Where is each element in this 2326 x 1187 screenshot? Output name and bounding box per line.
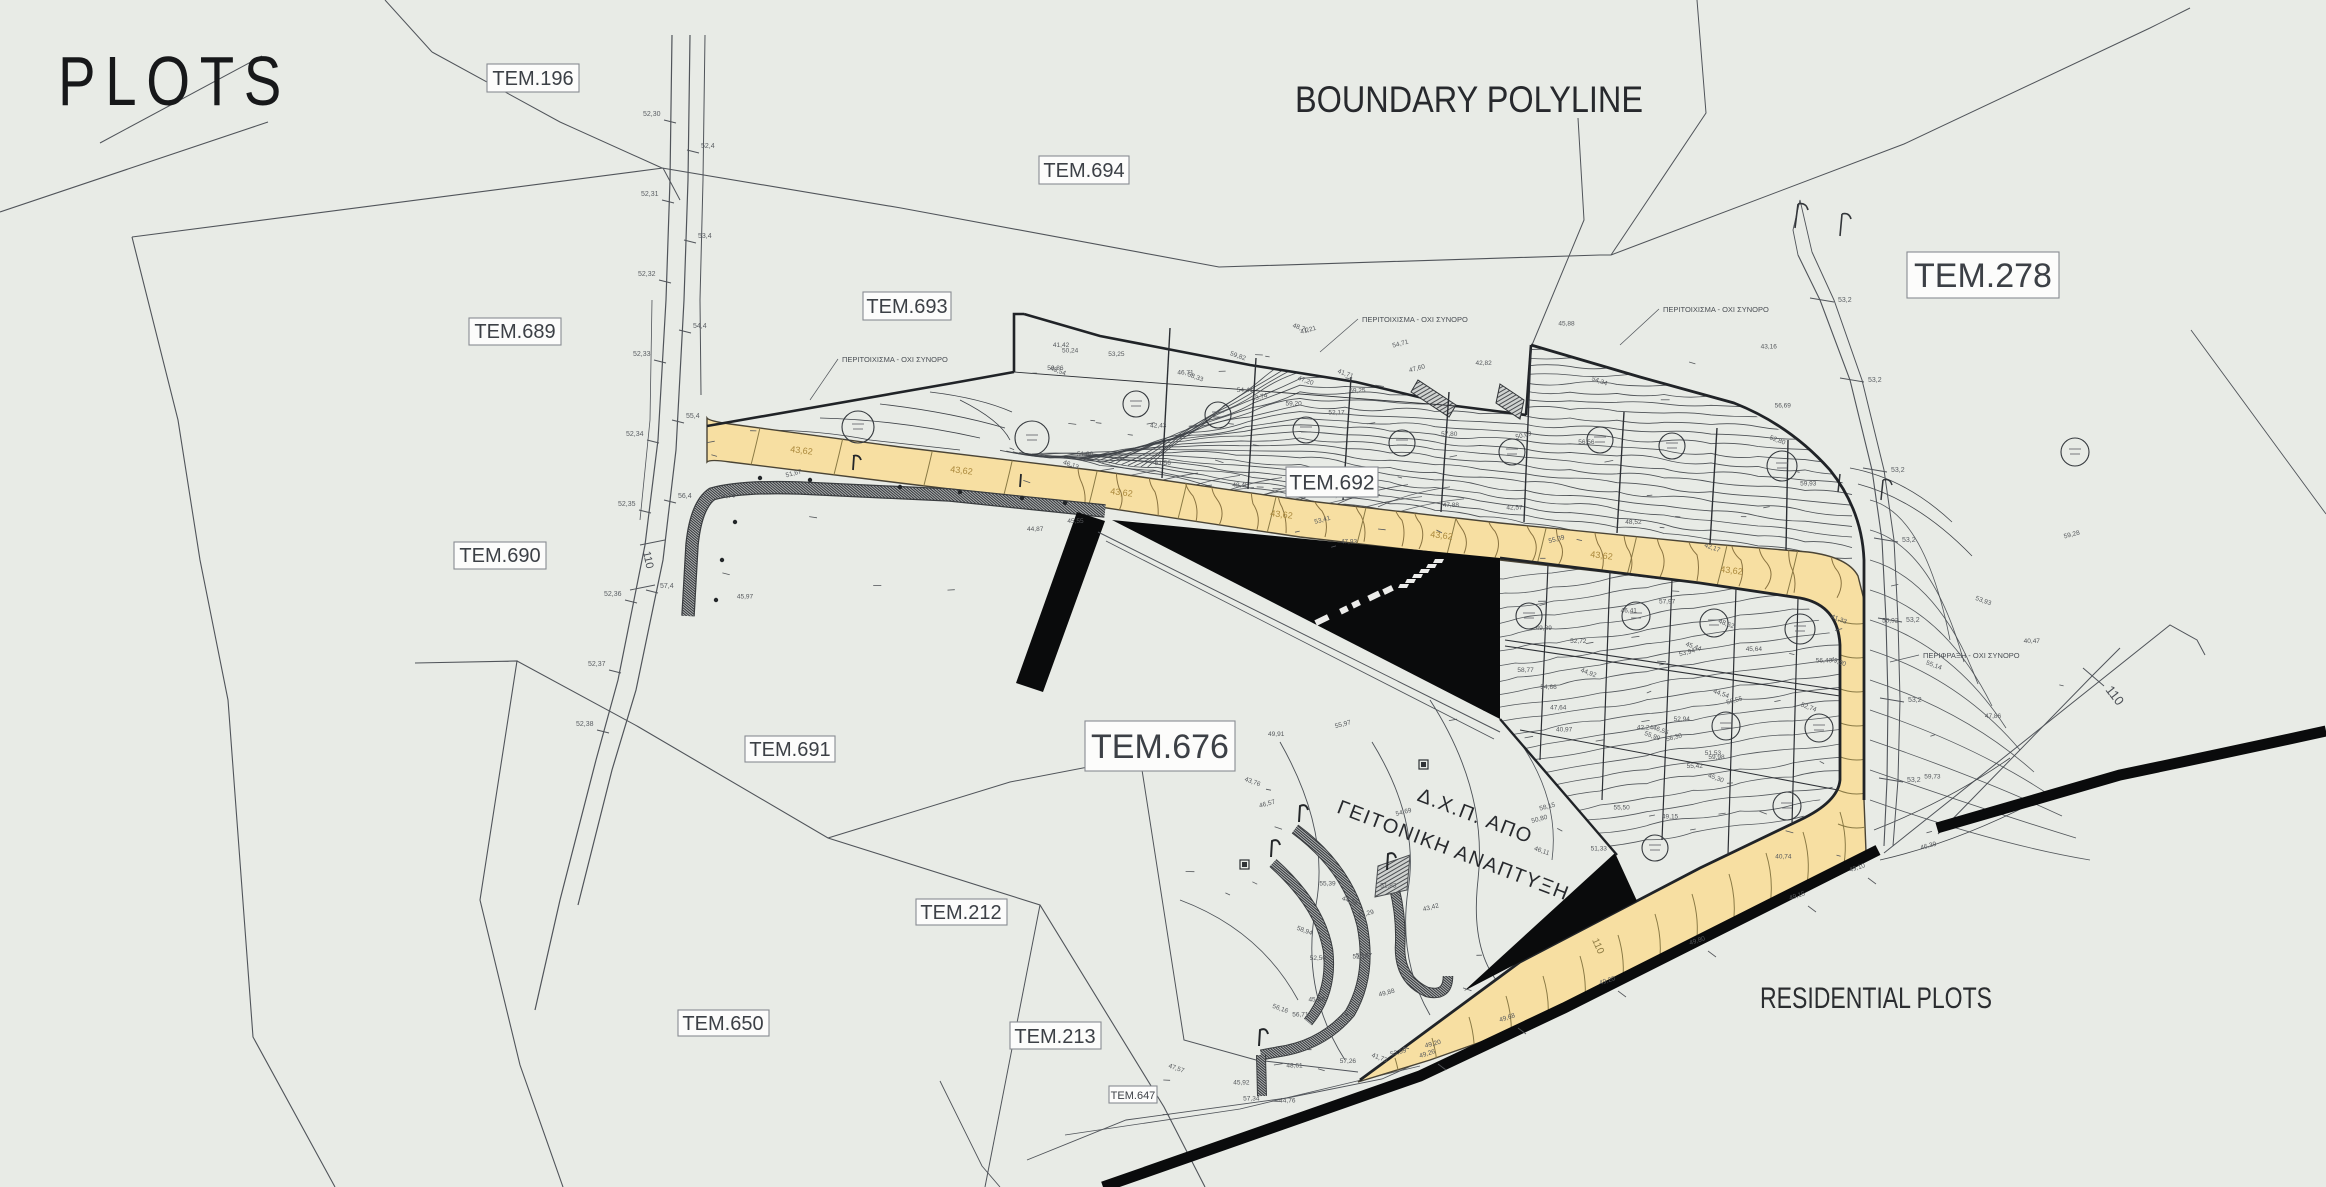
svg-text:54,74: 54,74 (719, 493, 736, 500)
svg-text:52,32: 52,32 (638, 271, 656, 278)
svg-text:48,48: 48,48 (1232, 482, 1249, 489)
svg-text:46,71: 46,71 (1177, 369, 1194, 376)
svg-text:52,37: 52,37 (588, 661, 606, 668)
svg-text:TEM.690: TEM.690 (459, 545, 540, 567)
svg-text:54,4: 54,4 (693, 323, 707, 330)
svg-text:52,33: 52,33 (633, 351, 651, 358)
svg-text:49,91: 49,91 (1268, 731, 1285, 738)
svg-text:PLOTS: PLOTS (58, 42, 291, 120)
svg-text:53,2: 53,2 (1868, 377, 1882, 384)
svg-text:49,89: 49,89 (1536, 625, 1553, 632)
svg-text:TEM.650: TEM.650 (682, 1013, 763, 1035)
svg-text:49,15: 49,15 (1662, 813, 1679, 820)
svg-text:55,4: 55,4 (686, 413, 700, 420)
svg-text:58,77: 58,77 (1517, 667, 1534, 674)
svg-text:47,86: 47,86 (1985, 713, 2002, 720)
svg-text:45,64: 45,64 (1746, 646, 1763, 653)
svg-text:52,72: 52,72 (1570, 638, 1587, 645)
svg-text:42,43: 42,43 (1150, 422, 1167, 429)
svg-text:42,57: 42,57 (1506, 505, 1523, 512)
svg-text:TEM.278: TEM.278 (1914, 257, 2052, 295)
svg-text:53,25: 53,25 (1108, 351, 1125, 358)
svg-text:52,50: 52,50 (1310, 955, 1327, 962)
svg-text:47,88: 47,88 (1443, 502, 1460, 509)
svg-text:56,69: 56,69 (1775, 402, 1792, 409)
svg-text:47,93: 47,93 (1341, 538, 1358, 545)
svg-text:53,2: 53,2 (1908, 697, 1922, 704)
svg-text:51,56: 51,56 (1155, 460, 1172, 467)
svg-text:TEM.196: TEM.196 (492, 68, 573, 90)
svg-text:ΠΕΡΙΤΟΙΧΙΣΜΑ - ΟΧΙ ΣΥΝΟΡΟ: ΠΕΡΙΤΟΙΧΙΣΜΑ - ΟΧΙ ΣΥΝΟΡΟ (1362, 315, 1468, 324)
svg-text:52,31: 52,31 (641, 191, 659, 198)
svg-text:59,73: 59,73 (1924, 774, 1941, 781)
svg-text:52,36: 52,36 (604, 591, 622, 598)
svg-text:TEM.213: TEM.213 (1014, 1026, 1095, 1048)
svg-text:48,61: 48,61 (1286, 1062, 1303, 1069)
svg-text:TEM.694: TEM.694 (1043, 160, 1124, 182)
svg-text:45,55: 45,55 (1067, 518, 1084, 525)
svg-text:51,14: 51,14 (1352, 954, 1369, 961)
svg-text:ΠΕΡΙΤΟΙΧΙΣΜΑ - ΟΧΙ ΣΥΝΟΡΟ: ΠΕΡΙΤΟΙΧΙΣΜΑ - ΟΧΙ ΣΥΝΟΡΟ (842, 355, 948, 364)
svg-text:53,4: 53,4 (698, 233, 712, 240)
svg-text:57,97: 57,97 (1659, 599, 1676, 606)
svg-text:59,25: 59,25 (1349, 388, 1366, 395)
svg-text:48,52: 48,52 (1625, 519, 1642, 526)
svg-text:41,42: 41,42 (1053, 342, 1070, 349)
svg-text:57,80: 57,80 (1441, 431, 1458, 438)
svg-text:52,30: 52,30 (643, 111, 661, 118)
svg-text:TEM.212: TEM.212 (920, 902, 1001, 924)
svg-text:40,97: 40,97 (1556, 726, 1573, 733)
svg-text:45,88: 45,88 (1558, 320, 1575, 327)
svg-text:59,20: 59,20 (1286, 401, 1303, 408)
svg-text:TEM.691: TEM.691 (749, 739, 830, 761)
svg-text:52,94: 52,94 (1674, 716, 1691, 723)
svg-text:ΠΕΡΙΤΟΙΧΙΣΜΑ - ΟΧΙ ΣΥΝΟΡΟ: ΠΕΡΙΤΟΙΧΙΣΜΑ - ΟΧΙ ΣΥΝΟΡΟ (1663, 305, 1769, 314)
svg-text:40,47: 40,47 (2024, 638, 2041, 645)
svg-text:53,2: 53,2 (1891, 467, 1905, 474)
svg-text:53,2: 53,2 (1907, 777, 1921, 784)
svg-text:57,34: 57,34 (1243, 1096, 1260, 1103)
svg-text:50,92: 50,92 (1882, 618, 1899, 625)
svg-text:TEM.693: TEM.693 (866, 296, 947, 318)
svg-text:55,39: 55,39 (1319, 881, 1336, 888)
svg-text:44,76: 44,76 (1279, 1098, 1296, 1105)
svg-text:52,35: 52,35 (618, 501, 636, 508)
svg-text:46,41: 46,41 (1621, 608, 1638, 615)
svg-text:54,66: 54,66 (1540, 684, 1557, 691)
svg-text:45,92: 45,92 (1233, 1080, 1250, 1087)
svg-text:57,4: 57,4 (660, 583, 674, 590)
svg-text:56,56: 56,56 (1578, 439, 1595, 446)
svg-text:52,17: 52,17 (1328, 410, 1345, 417)
svg-text:57,26: 57,26 (1340, 1058, 1357, 1065)
svg-text:53,2: 53,2 (1902, 537, 1916, 544)
svg-text:52,4: 52,4 (701, 143, 715, 150)
svg-text:51,33: 51,33 (1591, 846, 1608, 853)
svg-text:ΠΕΡΙΦΡΑΞΗ - ΟΧΙ ΣΥΝΟΡΟ: ΠΕΡΙΦΡΑΞΗ - ΟΧΙ ΣΥΝΟΡΟ (1923, 651, 2020, 660)
svg-text:54,41: 54,41 (1237, 387, 1254, 394)
svg-text:59,93: 59,93 (1800, 481, 1817, 488)
svg-text:RESIDENTIAL PLOTS: RESIDENTIAL PLOTS (1760, 982, 1992, 1015)
svg-text:51,83: 51,83 (1380, 883, 1397, 890)
svg-text:51,88: 51,88 (1077, 451, 1094, 458)
svg-text:40,74: 40,74 (1775, 854, 1792, 861)
svg-text:53,2: 53,2 (1906, 617, 1920, 624)
svg-text:55,50: 55,50 (1614, 804, 1631, 811)
svg-text:47,64: 47,64 (1550, 704, 1567, 711)
svg-text:53,2: 53,2 (1838, 297, 1852, 304)
svg-text:55,42: 55,42 (1687, 763, 1704, 770)
svg-text:44,87: 44,87 (1027, 526, 1044, 533)
svg-text:45,97: 45,97 (737, 593, 754, 600)
svg-text:TEM.676: TEM.676 (1091, 728, 1229, 766)
svg-text:45,88: 45,88 (1308, 997, 1325, 1004)
svg-text:TEM.692: TEM.692 (1289, 472, 1374, 495)
svg-text:TEM.647: TEM.647 (1111, 1090, 1156, 1102)
svg-text:42,82: 42,82 (1476, 360, 1493, 367)
svg-text:TEM.689: TEM.689 (474, 321, 555, 343)
svg-text:56,71: 56,71 (1292, 1012, 1309, 1019)
svg-text:52,38: 52,38 (576, 721, 594, 728)
svg-text:52,34: 52,34 (626, 431, 644, 438)
svg-text:43,16: 43,16 (1761, 343, 1778, 350)
svg-text:59,98: 59,98 (1708, 754, 1725, 761)
svg-text:BOUNDARY POLYLINE: BOUNDARY POLYLINE (1295, 79, 1643, 120)
svg-text:56,4: 56,4 (678, 493, 692, 500)
